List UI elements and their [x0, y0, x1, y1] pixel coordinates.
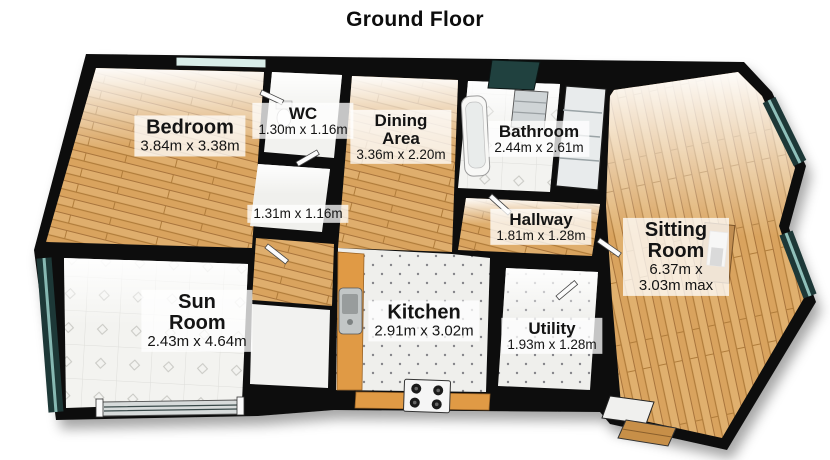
utility-name: Utility — [507, 320, 596, 338]
page-title: Ground Floor — [0, 8, 830, 32]
kitchen-name: Kitchen — [374, 302, 473, 323]
dining-area-dims: 3.36m x 2.20m — [356, 148, 445, 162]
wc-dims: 1.30m x 1.16m — [258, 123, 347, 137]
bathroom-name: Bathroom — [494, 123, 583, 141]
wc-label: WC 1.30m x 1.16m — [252, 103, 353, 139]
sun-room-label: Sun Room 2.43m x 4.64m — [141, 290, 252, 352]
sun-room-dims: 2.43m x 4.64m — [147, 334, 246, 350]
void-floor — [250, 304, 330, 388]
sun-room-name: Sun Room — [169, 292, 225, 334]
kitchen-dims: 2.91m x 3.02m — [374, 324, 473, 340]
dining-area-name: Dining Area — [366, 112, 436, 148]
sitting-room-label: Sitting Room 6.37m x 3.03m max — [623, 218, 729, 296]
lobby-floor — [252, 238, 334, 306]
bathroom-window — [488, 60, 540, 90]
sitting-room-dims: 6.37m x 3.03m max — [629, 262, 723, 294]
bathroom-label: Bathroom 2.44m x 2.61m — [488, 121, 589, 157]
dining-area-label: Dining Area 3.36m x 2.20m — [350, 110, 451, 164]
floorplan-page: Ground Floor Bedroom 3.84m x 3.38m WC 1.… — [0, 0, 830, 460]
sitting-room-name: Sitting Room — [630, 220, 722, 262]
bedroom-dims: 3.84m x 3.38m — [140, 139, 239, 155]
bathtub — [461, 95, 490, 176]
hallway-label: Hallway 1.81m x 1.28m — [490, 209, 591, 245]
bathroom-dims: 2.44m x 2.61m — [494, 141, 583, 155]
hallway-dims: 1.81m x 1.28m — [496, 229, 585, 243]
kitchen-sink — [339, 288, 362, 334]
wc-name: WC — [258, 105, 347, 123]
store-dims: 1.31m x 1.16m — [253, 207, 342, 221]
bedroom-name: Bedroom — [140, 117, 239, 138]
bedroom-label: Bedroom 3.84m x 3.38m — [134, 115, 245, 156]
kitchen-label: Kitchen 2.91m x 3.02m — [368, 300, 479, 341]
utility-label: Utility 1.93m x 1.28m — [501, 318, 602, 354]
bedroom-window — [176, 57, 266, 68]
store-label: 1.31m x 1.16m — [247, 205, 348, 223]
hallway-name: Hallway — [496, 211, 585, 229]
stove — [403, 379, 450, 413]
utility-dims: 1.93m x 1.28m — [507, 338, 596, 352]
